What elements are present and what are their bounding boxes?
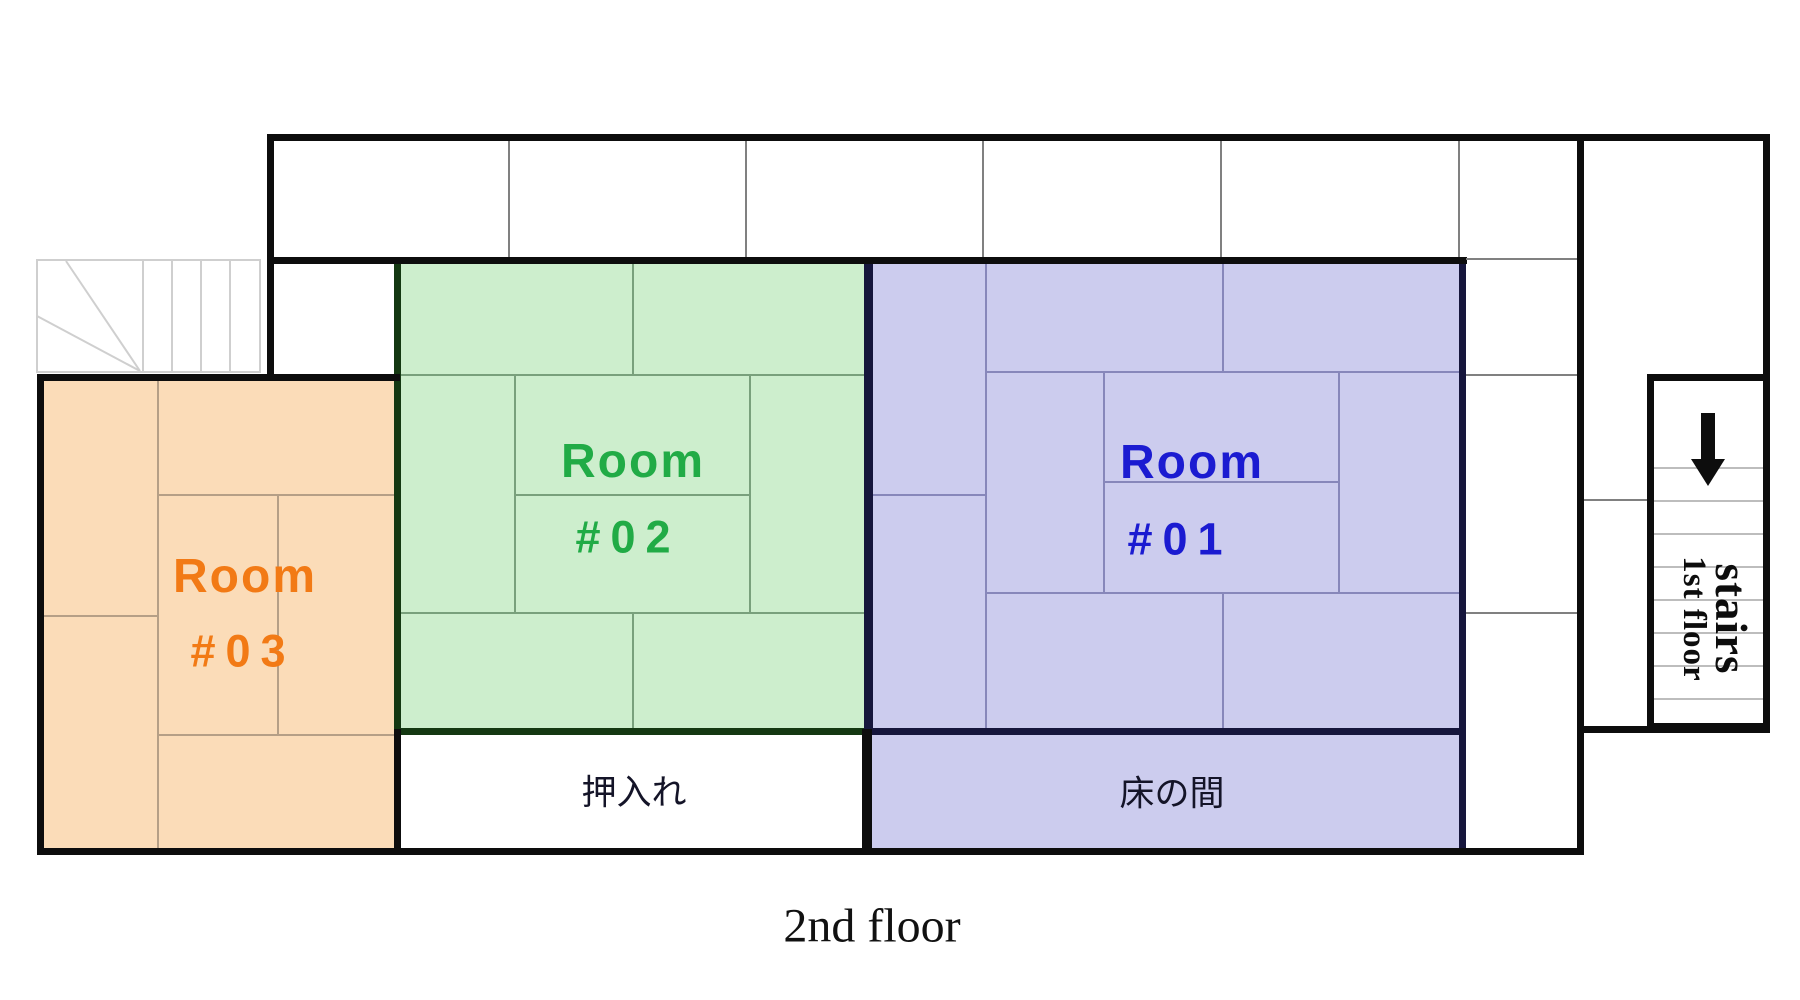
wall-segment (394, 729, 401, 855)
tatami-line (1222, 261, 1224, 372)
wall-segment (1459, 258, 1466, 855)
corridor-divider (982, 141, 984, 257)
corridor-divider (1220, 141, 1222, 257)
winder-stairs-icon (30, 255, 270, 381)
wall-segment (1577, 134, 1584, 855)
stair-step-line (1654, 500, 1763, 502)
stairs-note: stairs 1st floor (1660, 519, 1752, 719)
tatami-line (40, 615, 157, 617)
room-03-label-line2: #03 (190, 629, 295, 674)
tatami-line (159, 734, 394, 736)
tatami-line (985, 261, 987, 729)
floor-plan-2nd-floor: stairs 1st floor Room #03 Room #02 Room … (0, 0, 1800, 1000)
wall-segment (864, 258, 873, 735)
room-02-label-line1: Room (561, 438, 705, 486)
wall-segment (394, 258, 401, 735)
room-01-label-line1: Room (1120, 439, 1264, 487)
wall-segment (267, 257, 1467, 264)
alcove-label: 床の間 (1119, 777, 1224, 812)
closet-label: 押入れ (581, 776, 686, 811)
tatami-line (632, 614, 634, 732)
tatami-line (157, 378, 159, 850)
stairs-note-line2: 1st floor (1678, 519, 1709, 719)
tatami-line (397, 374, 868, 376)
tatami-line (1103, 373, 1105, 593)
corridor-divider (1466, 258, 1577, 260)
corridor-divider (1458, 141, 1460, 257)
hallway-divider (1466, 612, 1577, 614)
tatami-line (632, 261, 634, 374)
wall-segment (37, 374, 44, 855)
stairs-note-line1: stairs (1709, 519, 1752, 719)
wall-segment (872, 728, 1466, 735)
tatami-line (987, 371, 1459, 373)
room-02-label-line2: #02 (575, 515, 680, 560)
hallway-divider (1584, 499, 1647, 501)
wall-segment (37, 848, 1584, 855)
room-01-label-line2: #01 (1127, 517, 1232, 562)
tatami-line (1338, 373, 1340, 593)
tatami-line (871, 494, 985, 496)
wall-segment (394, 728, 872, 735)
wall-segment (862, 729, 872, 855)
tatami-line (277, 494, 279, 734)
tatami-line (749, 376, 751, 612)
corridor-divider (745, 141, 747, 257)
tatami-line (516, 494, 749, 496)
tatami-line (1222, 594, 1224, 729)
hallway-divider (1466, 374, 1577, 376)
corridor-divider (508, 141, 510, 257)
room-03-label-line1: Room (173, 553, 317, 601)
floor-title: 2nd floor (783, 899, 960, 954)
wall-segment (267, 134, 1770, 141)
